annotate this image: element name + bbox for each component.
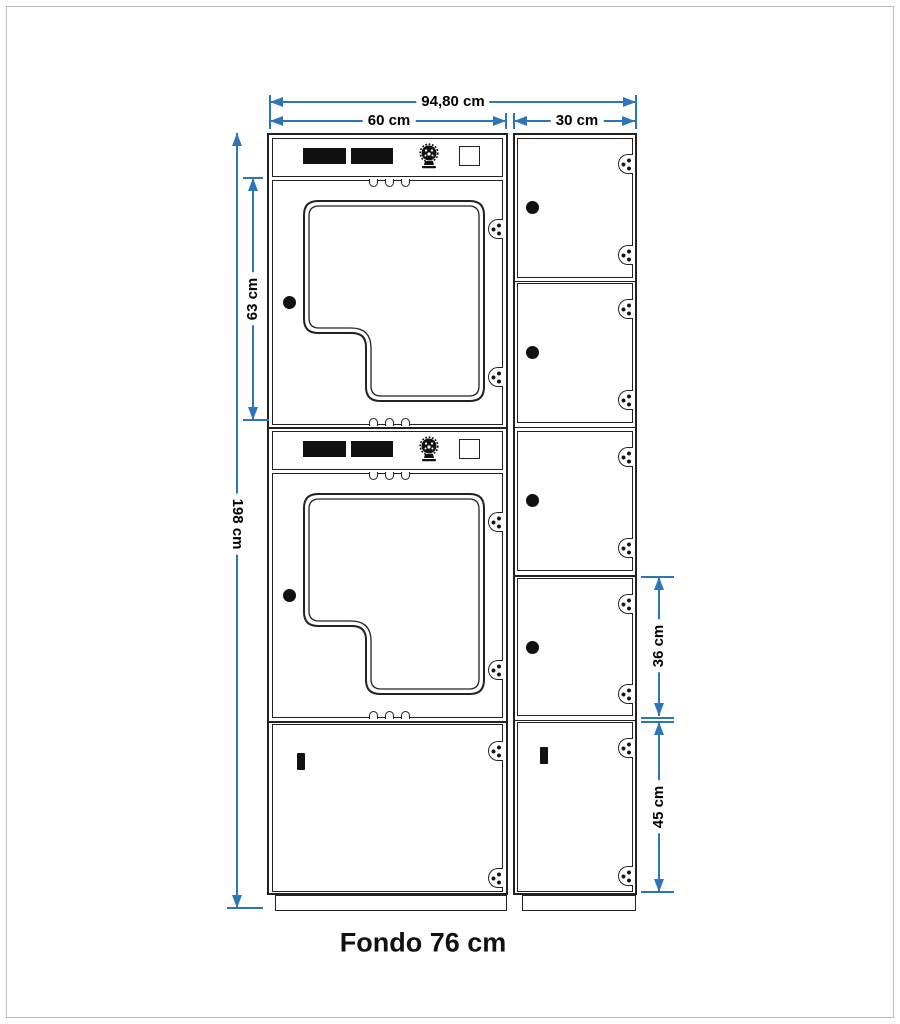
bottom-left-storage-door [272,724,503,892]
arrow-up-icon [654,722,664,735]
arrow-left-icon [270,116,283,126]
hinge-icon [618,154,633,174]
plinth-left [275,895,507,911]
hinge-icon [488,660,503,680]
arrow-right-icon [623,97,636,107]
washer1-display-left [303,148,346,164]
washer2-control-panel [272,431,503,470]
arrow-up-icon [654,577,664,590]
arrow-left-icon [514,116,527,126]
locker4-door [517,578,633,716]
vent-notch [369,418,378,426]
shelf-line [515,281,635,283]
locker2-door [517,283,633,423]
hinge-icon [618,447,633,467]
washer1-control-panel [272,138,503,177]
arrow-down-icon [248,407,258,420]
coin-logo-icon [419,143,439,170]
hinge-icon [618,684,633,704]
hinge-icon [488,741,503,761]
hinge-icon [618,245,633,265]
shelf-line [515,427,635,429]
arrow-up-icon [248,178,258,191]
locker-column [513,133,637,895]
hinge-icon [488,219,503,239]
locker1-door [517,138,633,278]
dim-label-locker-width: 30 cm [551,112,604,130]
key-slot-icon [540,747,548,764]
hinge-icon [618,299,633,319]
washer1-start-button [459,146,480,166]
washer1-display-right [351,148,393,164]
vent-notch [401,711,410,719]
locker5-door [517,722,633,892]
lock-dot-icon [526,346,539,359]
arrow-down-icon [654,703,664,716]
dim-label-washer-door-height: 63 cm [244,273,262,326]
washer-column [267,133,508,895]
shelf-line [515,720,635,722]
washer2-start-button [459,439,480,459]
hinge-icon [488,868,503,888]
vent-notch [385,711,394,719]
hinge-icon [618,538,633,558]
technical-drawing-canvas: 94,80 cm 60 cm 30 cm 63 cm 198 cm 36 cm … [0,0,900,1024]
dim-label-total-width: 94,80 cm [416,93,489,111]
arrow-up-icon [232,133,242,146]
lock-dot-icon [526,641,539,654]
hinge-icon [618,390,633,410]
shelf-line [515,575,635,577]
hinge-icon [618,594,633,614]
vent-notch [369,711,378,719]
depth-caption: Fondo 76 cm [340,928,507,959]
washer2-display-left [303,441,346,457]
lock-dot-icon [283,589,296,602]
arrow-down-icon [654,879,664,892]
dim-label-locker-height: 36 cm [650,620,668,673]
plinth-right [522,895,636,911]
arrow-down-icon [232,895,242,908]
key-slot-icon [297,753,305,770]
hinge-icon [618,866,633,886]
shelf-line [269,721,506,723]
vent-notch [401,418,410,426]
washer2-door-window [273,474,501,716]
arrow-right-icon [493,116,506,126]
extension-tick [641,717,674,719]
locker3-door [517,431,633,571]
lock-dot-icon [526,494,539,507]
dim-label-total-height: 198 cm [228,494,246,555]
dim-label-washer-width: 60 cm [363,112,416,130]
hinge-icon [488,367,503,387]
hinge-icon [488,512,503,532]
washer2-display-right [351,441,393,457]
dim-label-bottom-locker-height: 45 cm [650,781,668,834]
shelf-line [269,427,506,429]
coin-logo-icon [419,436,439,463]
lock-dot-icon [283,296,296,309]
vent-notch [385,418,394,426]
lock-dot-icon [526,201,539,214]
hinge-icon [618,738,633,758]
washer1-door-window [273,181,501,423]
arrow-left-icon [270,97,283,107]
arrow-right-icon [622,116,635,126]
washer1-door [272,180,503,425]
washer2-door [272,473,503,718]
